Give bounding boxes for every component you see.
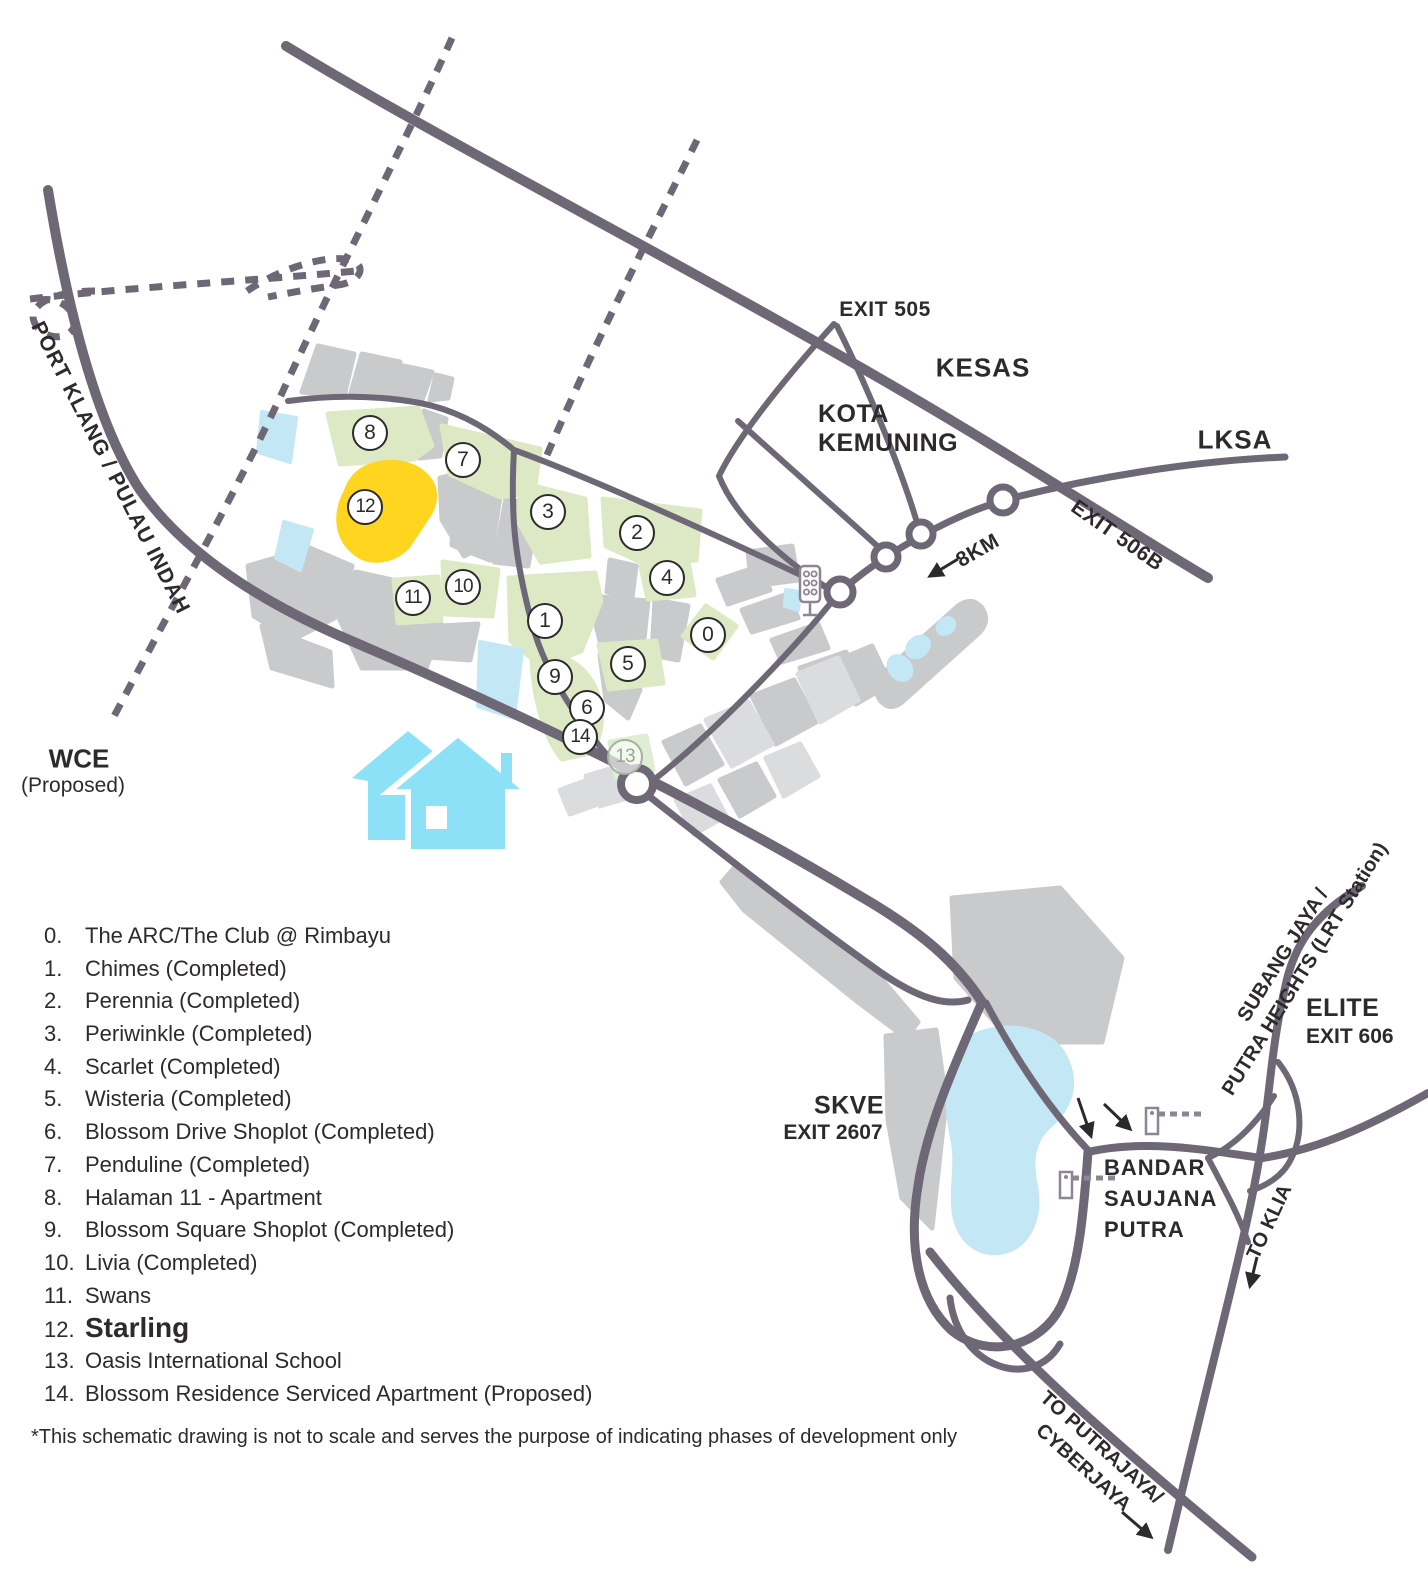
map-marker-1: 1 <box>527 603 563 639</box>
disclaimer-footnote: *This schematic drawing is not to scale … <box>31 1426 957 1449</box>
legend-item-9: 9.Blossom Square Shoplot (Completed) <box>44 1214 764 1247</box>
legend-num: 3. <box>44 1018 85 1051</box>
legend-label: Perennia (Completed) <box>85 985 300 1018</box>
legend-num: 5. <box>44 1083 85 1116</box>
map-marker-5: 5 <box>610 646 646 682</box>
legend-num: 11. <box>44 1280 85 1313</box>
legend-label: Periwinkle (Completed) <box>85 1018 312 1051</box>
map-marker-3: 3 <box>530 494 566 530</box>
legend-item-8: 8.Halaman 11 - Apartment <box>44 1182 764 1215</box>
legend-label: Halaman 11 - Apartment <box>85 1182 322 1215</box>
kota-kemuning-line1: KOTA <box>818 400 958 429</box>
elite-exit-label: EXIT 606 <box>1306 1025 1394 1049</box>
legend-num: 8. <box>44 1182 85 1215</box>
legend-label: Starling <box>85 1312 189 1345</box>
legend-item-14: 14.Blossom Residence Serviced Apartment … <box>44 1378 764 1411</box>
legend-label: Penduline (Completed) <box>85 1149 310 1182</box>
legend-num: 9. <box>44 1214 85 1247</box>
legend-item-12-starling: 12.Starling <box>44 1312 764 1345</box>
legend-label: Livia (Completed) <box>85 1247 257 1280</box>
kesas-label: KESAS <box>936 353 1031 384</box>
legend-item-5: 5.Wisteria (Completed) <box>44 1083 764 1116</box>
legend-num: 13. <box>44 1345 85 1378</box>
elite-label: ELITE <box>1306 994 1394 1023</box>
legend-num: 6. <box>44 1116 85 1149</box>
map-marker-13: 13 <box>607 739 643 775</box>
traffic-light-icon <box>800 566 820 615</box>
legend-item-4: 4.Scarlet (Completed) <box>44 1051 764 1084</box>
bsp-line2: SAUJANA <box>1104 1183 1217 1214</box>
elite-label-block: ELITE EXIT 606 <box>1306 994 1394 1049</box>
legend-label: Swans <box>85 1280 151 1313</box>
bsp-line3: PUTRA <box>1104 1214 1217 1245</box>
legend-num: 1. <box>44 953 85 986</box>
skve-label: SKVE <box>814 1092 884 1121</box>
legend-item-7: 7.Penduline (Completed) <box>44 1149 764 1182</box>
map-marker-4: 4 <box>649 560 685 596</box>
legend-label: Scarlet (Completed) <box>85 1051 281 1084</box>
legend-num: 2. <box>44 985 85 1018</box>
exit-505-label: EXIT 505 <box>839 298 931 322</box>
toll-gate-icon-1 <box>1146 1108 1202 1134</box>
legend-label: Blossom Drive Shoplot (Completed) <box>85 1116 435 1149</box>
bsp-line1: BANDAR <box>1104 1152 1217 1183</box>
map-marker-11: 11 <box>395 580 431 616</box>
map-marker-8: 8 <box>352 415 388 451</box>
legend-label: Chimes (Completed) <box>85 953 287 986</box>
legend-item-2: 2.Perennia (Completed) <box>44 985 764 1018</box>
legend-num: 0. <box>44 920 85 953</box>
legend-num: 4. <box>44 1051 85 1084</box>
legend-num: 7. <box>44 1149 85 1182</box>
legend: 0.The ARC/The Club @ Rimbayu 1.Chimes (C… <box>44 920 764 1410</box>
legend-num: 12. <box>44 1314 85 1347</box>
map-marker-7: 7 <box>445 442 481 478</box>
wce-proposed-label: (Proposed) <box>21 774 125 798</box>
arrow-8km <box>930 559 958 576</box>
arrow-bsp-1 <box>1078 1098 1091 1136</box>
kota-kemuning-label: KOTA KEMUNING <box>818 400 958 458</box>
legend-item-0: 0.The ARC/The Club @ Rimbayu <box>44 920 764 953</box>
legend-label: Wisteria (Completed) <box>85 1083 292 1116</box>
map-marker-14: 14 <box>562 719 598 755</box>
lksa-label: LKSA <box>1198 425 1273 456</box>
bandar-saujana-putra-label: BANDAR SAUJANA PUTRA <box>1104 1152 1217 1245</box>
legend-item-10: 10.Livia (Completed) <box>44 1247 764 1280</box>
map-marker-0: 0 <box>690 617 726 653</box>
legend-item-6: 6.Blossom Drive Shoplot (Completed) <box>44 1116 764 1149</box>
legend-item-3: 3.Periwinkle (Completed) <box>44 1018 764 1051</box>
skve-exit-label: EXIT 2607 <box>783 1121 882 1145</box>
legend-label: Blossom Residence Serviced Apartment (Pr… <box>85 1378 592 1411</box>
map-marker-2: 2 <box>619 515 655 551</box>
arrow-to-klia <box>1250 1257 1257 1286</box>
kota-kemuning-line2: KEMUNING <box>818 429 958 458</box>
map-marker-9: 9 <box>537 659 573 695</box>
wce-label: WCE <box>49 744 110 775</box>
arrow-bsp-2 <box>1104 1104 1130 1129</box>
legend-item-1: 1.Chimes (Completed) <box>44 953 764 986</box>
legend-label: Blossom Square Shoplot (Completed) <box>85 1214 454 1247</box>
map-marker-10: 10 <box>445 569 481 605</box>
legend-item-13: 13.Oasis International School <box>44 1345 764 1378</box>
legend-item-11: 11.Swans <box>44 1280 764 1313</box>
map-marker-12-starling: 12 <box>347 489 383 525</box>
house-icon <box>352 731 528 852</box>
legend-label: The ARC/The Club @ Rimbayu <box>85 920 391 953</box>
legend-num: 14. <box>44 1378 85 1411</box>
legend-label: Oasis International School <box>85 1345 342 1378</box>
lake <box>947 1028 1072 1254</box>
legend-num: 10. <box>44 1247 85 1280</box>
schematic-location-map: EXIT 505 KESAS KOTA KEMUNING LKSA EXIT 5… <box>0 0 1428 1582</box>
